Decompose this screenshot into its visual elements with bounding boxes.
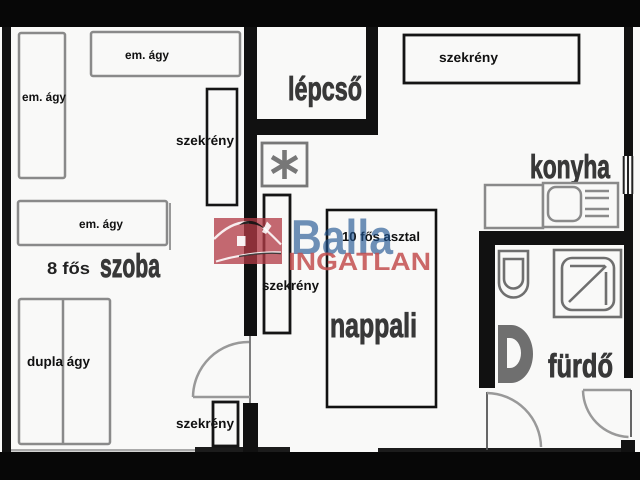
svg-text:nappali: nappali — [330, 307, 417, 345]
svg-text:8 fős: 8 fős — [47, 259, 90, 278]
svg-text:lépcső: lépcső — [288, 70, 362, 107]
svg-text:szekrény: szekrény — [176, 133, 234, 148]
svg-text:INGATLAN: INGATLAN — [288, 248, 431, 276]
svg-text:em. ágy: em. ágy — [79, 217, 123, 231]
svg-text:konyha: konyha — [530, 148, 610, 185]
svg-text:szekrény: szekrény — [176, 416, 234, 431]
svg-text:em. ágy: em. ágy — [125, 48, 169, 62]
svg-text:fürdő: fürdő — [548, 347, 613, 384]
svg-text:szekrény: szekrény — [439, 50, 498, 65]
svg-text:dupla ágy: dupla ágy — [27, 354, 90, 369]
svg-text:em. ágy: em. ágy — [22, 90, 66, 104]
svg-text:szoba: szoba — [100, 247, 160, 284]
svg-text:szekrény: szekrény — [262, 278, 319, 293]
